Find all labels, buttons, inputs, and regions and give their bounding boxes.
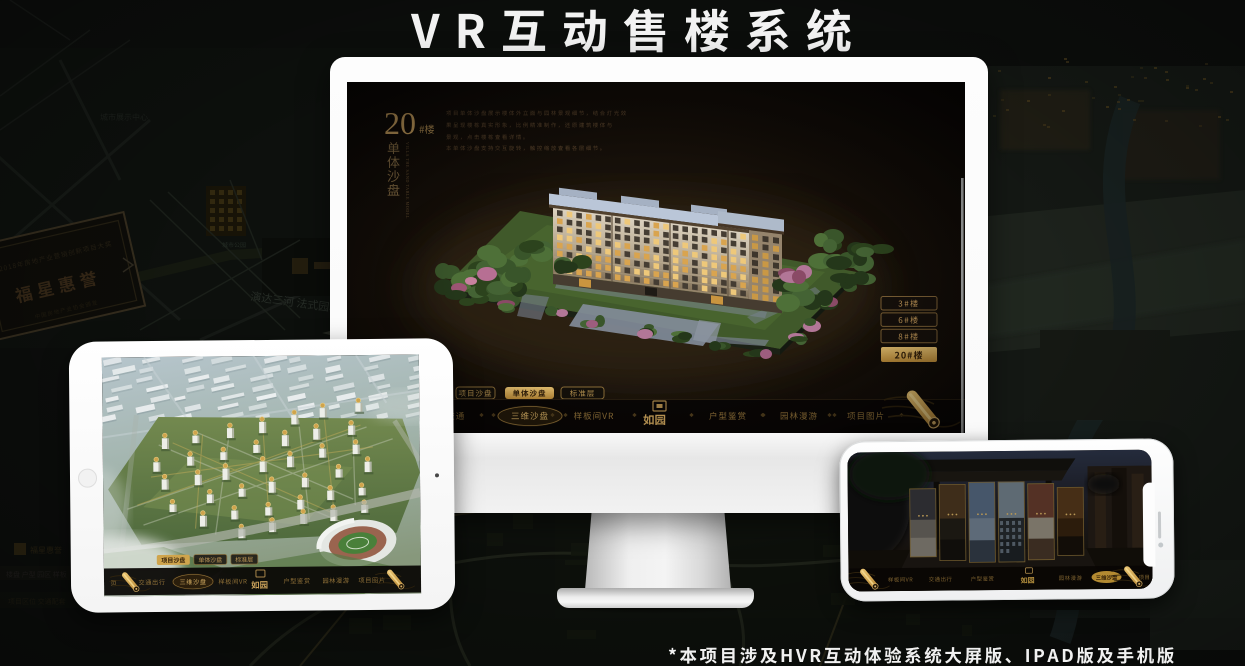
- svg-text:户型鉴赏: 户型鉴赏: [283, 576, 310, 585]
- svg-text:如园: 如园: [1021, 576, 1035, 586]
- svg-text:三维沙盘: 三维沙盘: [179, 577, 206, 586]
- svg-text:项目沙盘: 项目沙盘: [161, 555, 185, 564]
- svg-text:园林漫游: 园林漫游: [322, 576, 349, 585]
- svg-text:项目: 项目: [1139, 573, 1151, 581]
- svg-text:单体沙盘: 单体沙盘: [198, 555, 222, 564]
- svg-text:标准层: 标准层: [235, 555, 253, 564]
- svg-text:交通出行: 交通出行: [138, 577, 165, 586]
- svg-text:户型鉴赏: 户型鉴赏: [971, 575, 995, 583]
- svg-text:园林漫游: 园林漫游: [1059, 574, 1083, 582]
- svg-text:交通出行: 交通出行: [929, 575, 953, 583]
- svg-text:样板间VR: 样板间VR: [218, 577, 247, 586]
- svg-text:如园: 如园: [251, 579, 268, 591]
- svg-text:样板间VR: 样板间VR: [888, 575, 913, 583]
